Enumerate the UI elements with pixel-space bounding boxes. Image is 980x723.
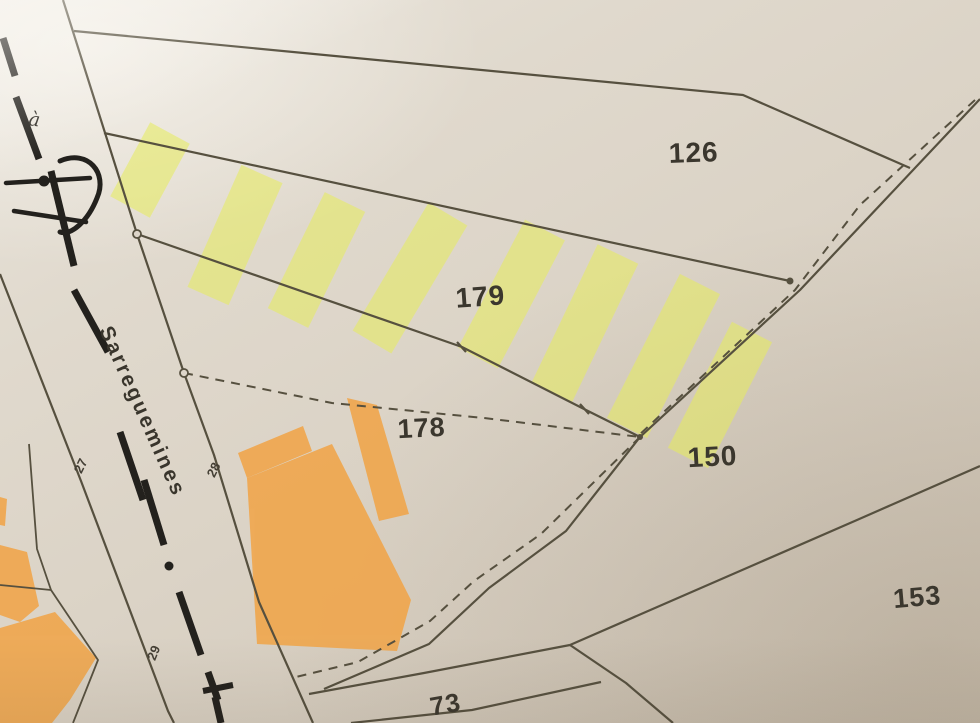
road-axis-dash — [215, 697, 221, 723]
direction-dot — [39, 176, 50, 187]
parcel-label-178: 178 — [397, 412, 447, 444]
cadastral-map-photo: 126 179 178 150 153 73 à Sarreguemines 2… — [0, 0, 980, 723]
building-footprint — [0, 545, 39, 622]
path-73-right-line — [570, 645, 673, 723]
road-symbols — [6, 158, 100, 233]
highlight-strip — [372, 214, 448, 342]
point-number-29: 29 — [144, 643, 163, 662]
parcel-label-153: 153 — [892, 580, 942, 614]
survey-tick — [580, 404, 589, 414]
parcel-126-top-line — [74, 31, 910, 168]
point-number-27: 27 — [71, 456, 91, 476]
path-73-top-line — [309, 645, 570, 694]
path-73-bottom-line — [351, 682, 601, 723]
direction-stroke — [14, 211, 86, 222]
road-axis-crossbar — [203, 685, 233, 691]
road-axis-dash — [179, 592, 201, 655]
boundary-point-dot — [637, 434, 643, 440]
boundary-point-circle — [133, 230, 141, 238]
building-footprint — [0, 497, 7, 526]
parcel-153-top-line — [570, 466, 980, 645]
parcel-label-150: 150 — [687, 440, 738, 474]
highlight-strip — [208, 174, 262, 296]
road-to-label: à — [27, 108, 41, 131]
building-footprint — [0, 612, 96, 723]
highlight-strip — [552, 254, 618, 392]
labels: 126 179 178 150 153 73 à Sarreguemines 2… — [27, 108, 942, 721]
road-axis-dot — [165, 562, 174, 571]
map-canvas: 126 179 178 150 153 73 à Sarreguemines 2… — [0, 0, 980, 723]
parcel-label-179: 179 — [454, 279, 506, 313]
highlight-strips — [130, 133, 752, 458]
highlight-strip — [688, 332, 752, 458]
road-axis-dash — [144, 480, 164, 545]
road-axis-dash — [120, 432, 143, 500]
parcel-label-73: 73 — [428, 687, 464, 722]
parcel-label-126: 126 — [668, 136, 719, 169]
highlight-strip — [130, 133, 170, 207]
boundary-lines — [0, 0, 980, 723]
road-axis-dash — [3, 38, 15, 76]
boundary-point-circle — [180, 369, 188, 377]
boundary-point-dot — [787, 278, 794, 285]
highlight-strip — [288, 202, 345, 318]
